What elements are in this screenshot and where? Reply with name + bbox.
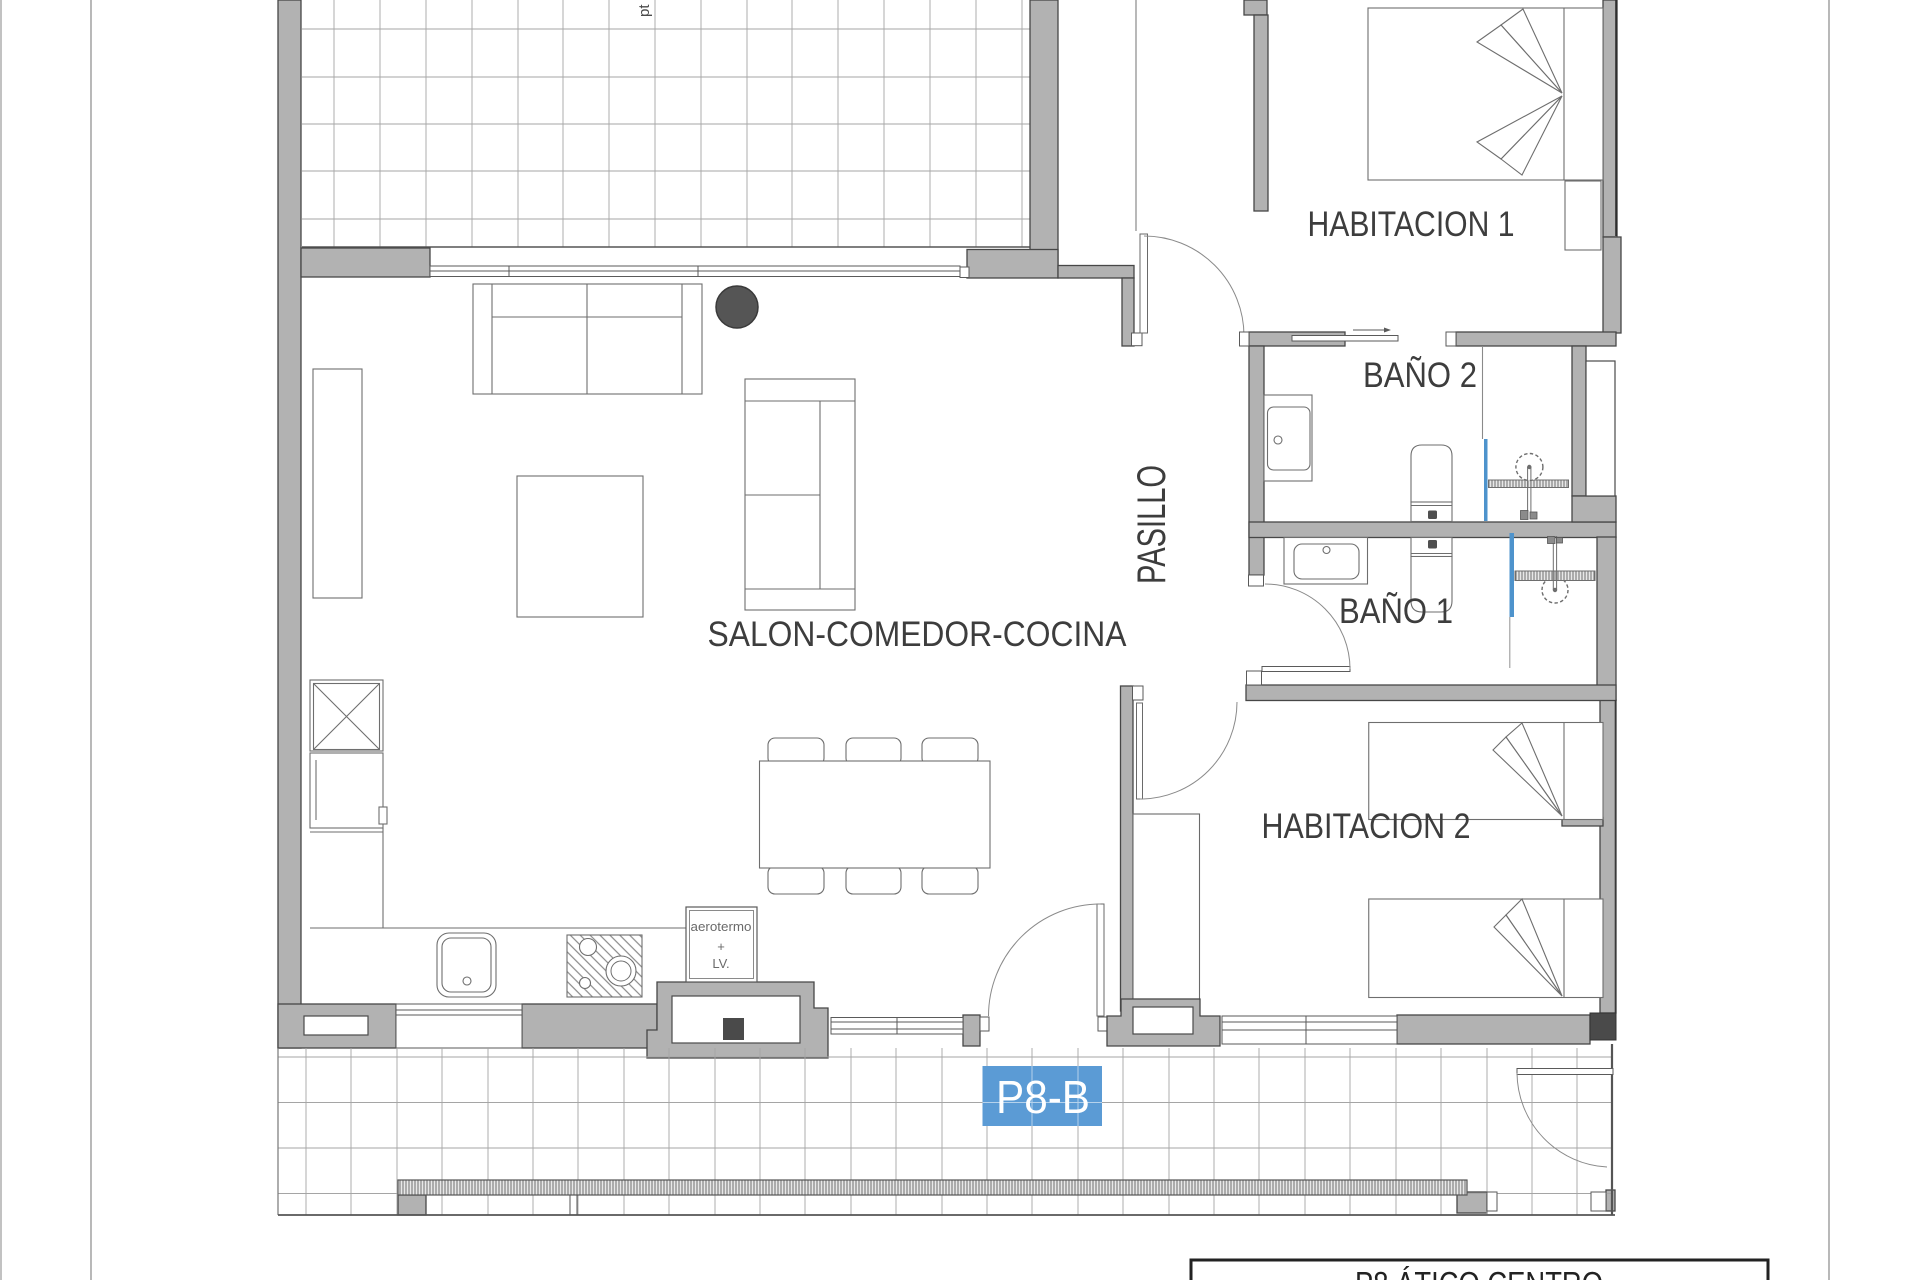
svg-text:pt: pt	[636, 4, 653, 17]
svg-text:P8-B: P8-B	[996, 1071, 1090, 1123]
svg-text:aerotermo: aerotermo	[691, 919, 752, 934]
svg-text:HABITACION 2: HABITACION 2	[1262, 807, 1471, 846]
svg-text:BAÑO 1: BAÑO 1	[1339, 592, 1453, 631]
svg-text:BAÑO 2: BAÑO 2	[1363, 356, 1477, 395]
svg-text:P8 ÁTICO CENTRO: P8 ÁTICO CENTRO	[1355, 1265, 1603, 1280]
svg-text:SALON-COMEDOR-COCINA: SALON-COMEDOR-COCINA	[708, 615, 1128, 654]
svg-text:LV.: LV.	[712, 956, 729, 971]
svg-text:HABITACION 1: HABITACION 1	[1308, 205, 1515, 244]
svg-text:+: +	[717, 939, 725, 954]
svg-text:PASILLO: PASILLO	[1130, 465, 1174, 584]
